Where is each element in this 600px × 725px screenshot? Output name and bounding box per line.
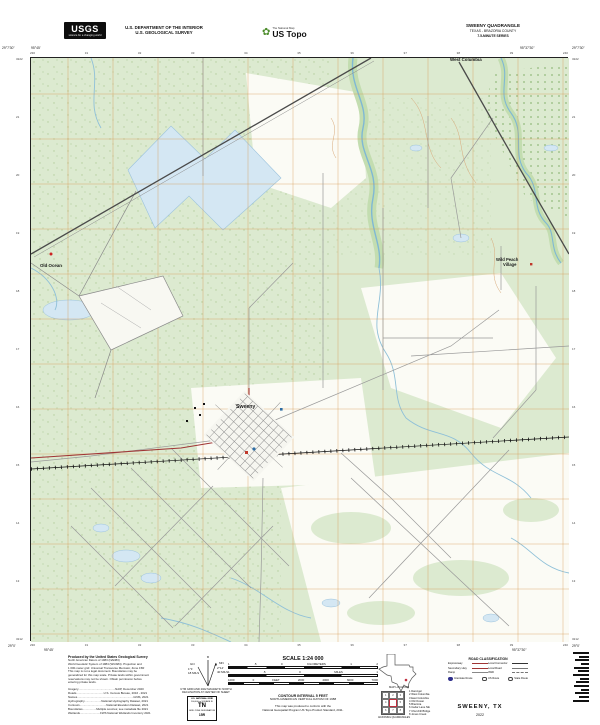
corner-lon-bottom-left: 95°45' (44, 648, 54, 652)
department-header: U.S. DEPARTMENT OF THE INTERIOR U.S. GEO… (104, 25, 224, 36)
utm-left-tick-labels: 32222120191817161514133212 (16, 57, 23, 641)
utm-bottom-tick-labels: 230313233343536373839240 (30, 643, 568, 647)
secondary-hwy-sample (472, 668, 488, 669)
scale-bar-miles: 1.50MILES1 (228, 671, 378, 677)
credits-lines: North American Datum of 1983 (NAD83)Worl… (68, 659, 190, 685)
map-area (30, 57, 568, 641)
ustopo-logo: ✿ The National Map US Topo (262, 27, 342, 39)
blue-building-marker (280, 408, 283, 411)
adjoining-quads-caption: ADJOINING QUADRANGLES (366, 716, 422, 719)
scale-title: SCALE 1:24 000 (228, 656, 378, 662)
map-location-caption: MAP LOCATION (368, 686, 430, 689)
label-sweeny: Sweeny (236, 404, 255, 410)
usgs-tagline: science for a changing world (69, 34, 102, 37)
state-route-shield-icon (508, 677, 513, 682)
topo-map-graphic (31, 58, 569, 642)
mn-label: MN (219, 661, 224, 665)
gn-label: GN (190, 662, 195, 666)
scale-bar-kilometers: 1.50KILOMETERS12 (228, 663, 378, 669)
sheet-year: 2022 (428, 713, 532, 717)
barcode (571, 652, 589, 702)
label-west-columbia: West Columbia (450, 57, 482, 62)
mn-mils: 40 MILS (217, 670, 228, 674)
expressway-sample (472, 663, 488, 664)
corner-lon-top-right: 95°37'30" (520, 46, 535, 50)
vertical-datum: NORTH AMERICAN VERTICAL DATUM OF 1988 (203, 698, 403, 702)
dept-line2: U.S. GEOLOGICAL SURVEY (104, 30, 224, 35)
utm-top-tick-labels: 230313233343536373839240 (30, 51, 568, 55)
adjoining-quads-grid: 1 2 3 4 5 6 7 8 (381, 691, 405, 715)
map-location-dot (405, 679, 408, 682)
old-ocean-marker (50, 253, 53, 256)
wild-peach-marker (530, 263, 532, 265)
local-road-sample (512, 668, 528, 669)
corner-lat-bottom-left: 29°0' (8, 644, 16, 648)
road-classification-legend: ROAD CLASSIFICATION Expressway Secondary… (446, 656, 530, 686)
school-marker (245, 451, 248, 454)
ustopo-wordmark: US Topo (262, 30, 342, 39)
scale-bar-feet: 10000FEET2000400060007000 (228, 679, 378, 685)
sheet-title: SWEENY, TX (428, 704, 532, 710)
production-credits: Produced by the United States Geological… (68, 655, 190, 715)
declination-diagram: ★ MN 2°14' 40 MILS GN 1°1' 18 MILS (186, 653, 232, 689)
gn-mils: 18 MILS (188, 671, 199, 675)
ustopo-flower-icon: ✿ (262, 27, 270, 39)
fourwd-sample (512, 672, 528, 673)
contour-info: CONTOUR INTERVAL 5 FEET NORTH AMERICAN V… (203, 694, 403, 712)
interstate-shield-icon (448, 677, 453, 682)
quad-series: 7.5-MINUTE SERIES (440, 34, 546, 39)
usgs-logo-text: USGS (71, 25, 99, 34)
corner-lon-bottom-right: 95°37'30" (512, 648, 527, 652)
ramp-sample (472, 672, 488, 673)
corner-lon-top-left: 95°45' (31, 46, 41, 50)
label-old-ocean: Old Ocean (40, 263, 62, 268)
usgs-topo-sheet: USGS science for a changing world U.S. D… (0, 0, 600, 725)
true-north-star: ★ (207, 655, 210, 659)
corner-lat-top-right: 29°7'30" (572, 46, 585, 50)
label-wild-peach-2: Village (503, 262, 516, 267)
usgs-logo: USGS science for a changing world (64, 22, 106, 39)
us-route-shield-icon (482, 677, 487, 681)
conform-line2: National Geospatial Program US Topo Prod… (203, 709, 403, 713)
corner-lat-top-left: 29°7'30" (2, 46, 15, 50)
water-tank-marker (252, 447, 255, 450)
quadrangle-title-block: SWEENY QUADRANGLE TEXAS - BRAZORIA COUNT… (440, 23, 546, 39)
corner-lat-bottom-right: 29°0' (572, 644, 580, 648)
usng-zone: 15R (188, 713, 216, 717)
local-connector-sample (512, 663, 528, 664)
utm-right-tick-labels: 32222120191817161514133212 (572, 57, 579, 641)
